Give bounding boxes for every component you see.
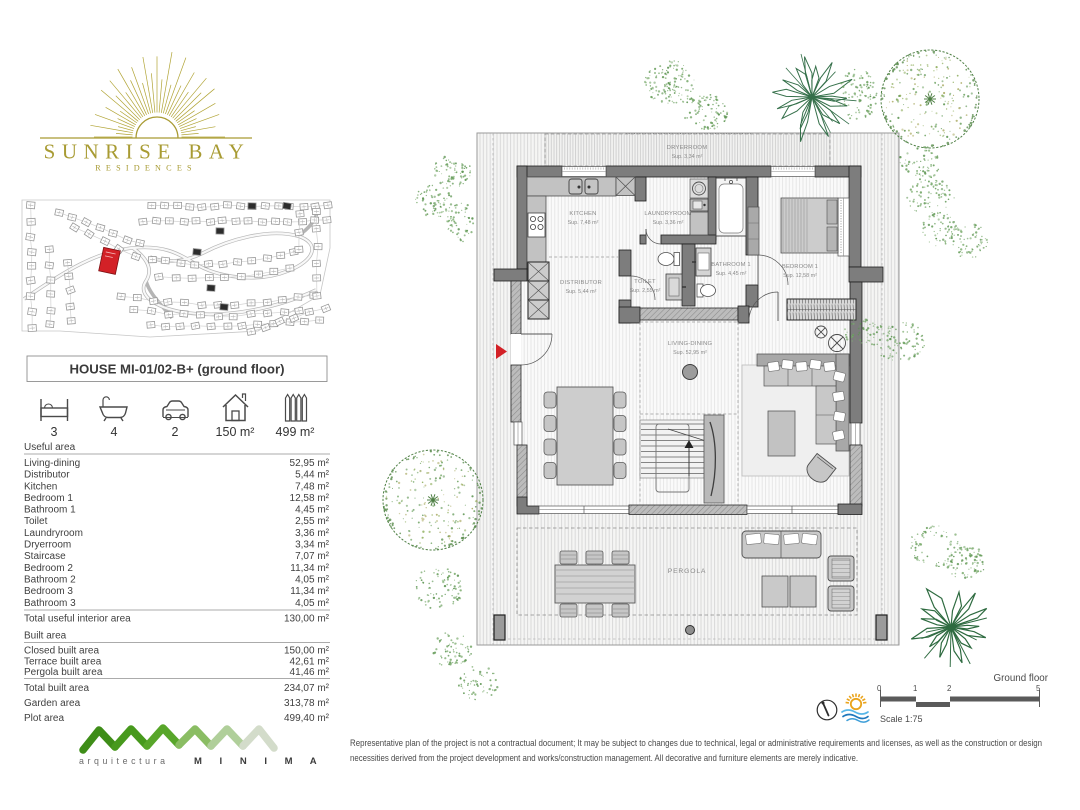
svg-text:1: 1 [913,684,917,693]
svg-text:5: 5 [1036,684,1041,693]
svg-text:Scale 1:75: Scale 1:75 [880,714,923,724]
svg-text:Ground floor: Ground floor [994,673,1049,684]
svg-text:2: 2 [947,684,951,693]
svg-text:0: 0 [877,684,882,693]
